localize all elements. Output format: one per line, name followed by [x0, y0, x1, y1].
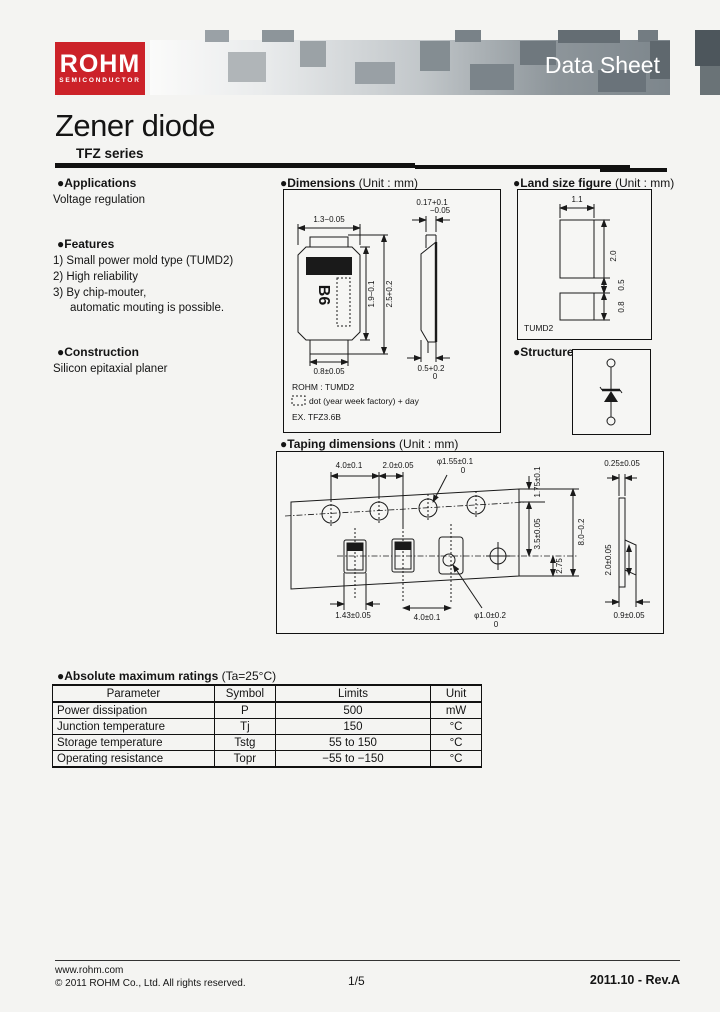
land-caption: TUMD2	[524, 323, 554, 333]
construction-body: Silicon epitaxial planer	[53, 361, 167, 377]
footer-site: www.rohm.com	[55, 964, 123, 977]
dimension-notes: ROHM : TUMD2 dot (year week factory) + d…	[292, 382, 420, 422]
cell-unit: mW	[431, 702, 482, 719]
rohm-logo: ROHM SEMICONDUCTOR	[55, 42, 145, 95]
table-row: Power dissipation P 500 mW	[53, 702, 482, 719]
dim-side-thickness-a: 0.5+0.2	[418, 364, 445, 373]
package-front-view: B6	[298, 237, 360, 354]
features-item: 3) By chip-mouter,	[53, 285, 146, 301]
datasheet-page: { "header": {"logo_brand": "ROHM", "logo…	[0, 0, 720, 1012]
structure-figure	[572, 349, 651, 435]
banner-square	[300, 41, 326, 67]
structure-drawing	[573, 350, 650, 434]
footer-page-number: 1/5	[348, 974, 365, 988]
dim-land-width: 1.1	[571, 195, 583, 204]
dim-lead-width: 0.8±0.05	[313, 367, 345, 376]
dim-pocket-hole-tol: 0	[494, 620, 499, 629]
rohm-logo-subtext: SEMICONDUCTOR	[59, 77, 140, 84]
applications-heading: ●Applications	[57, 176, 136, 190]
banner-title: Data Sheet	[545, 52, 660, 79]
cell-parameter: Junction temperature	[53, 719, 215, 735]
dim-pocket-width: 1.43±0.05	[335, 611, 371, 620]
page-title: Zener diode	[55, 108, 215, 144]
rohm-logo-text: ROHM	[60, 53, 140, 75]
cell-symbol: Tstg	[214, 735, 275, 751]
taping-heading-text: ●Taping dimensions	[280, 437, 396, 451]
dim-tape-width: 8.0−0.2	[577, 518, 586, 545]
features-item: 2) High reliability	[53, 269, 138, 285]
dimensions-figure: B6 1.3−0.05 1.9−0.1 2.5+0.2 0.8±0.05 0.1…	[283, 189, 501, 433]
land-heading-text: ●Land size figure	[513, 176, 612, 190]
taping-figure: 4.0±0.1 2.0±0.05 φ1.55±0.1 0 1.75±0.1 3.…	[276, 451, 664, 634]
cell-limits: 55 to 150	[275, 735, 430, 751]
land-drawing: 1.1 2.0 0.5 0.8 TUMD2	[518, 190, 651, 339]
construction-heading: ●Construction	[57, 345, 139, 359]
dim-tape-thickness: 0.25±0.05	[604, 459, 640, 468]
table-row: Operating resistance Topr −55 to −150 °C	[53, 751, 482, 768]
dim-front-width: 1.3−0.05	[313, 215, 345, 224]
dim-land-length: 2.0	[609, 250, 618, 262]
series-subtitle: TFZ series	[76, 146, 144, 161]
dim-total-length: 2.5+0.2	[385, 280, 394, 307]
cell-limits: −55 to −150	[275, 751, 430, 768]
ratings-table: Parameter Symbol Limits Unit Power dissi…	[52, 684, 482, 768]
table-header-row: Parameter Symbol Limits Unit	[53, 685, 482, 702]
package-side-view	[421, 235, 436, 353]
cell-limits: 500	[275, 702, 430, 719]
cell-unit: °C	[431, 735, 482, 751]
title-rule	[55, 163, 415, 168]
banner-square	[455, 30, 481, 42]
cell-symbol: P	[214, 702, 275, 719]
note-dot-legend: dot (year week factory) + day	[309, 396, 420, 406]
front-dimension-lines: 1.3−0.05 1.9−0.1 2.5+0.2 0.8±0.05	[298, 215, 394, 376]
ratings-table-wrap: Parameter Symbol Limits Unit Power dissi…	[52, 684, 482, 768]
features-item: automatic mouting is possible.	[70, 300, 224, 316]
cell-symbol: Topr	[214, 751, 275, 768]
taping-heading: ●Taping dimensions (Unit : mm)	[280, 437, 458, 451]
dimensions-unit: (Unit : mm)	[359, 176, 418, 190]
land-dimension-lines: 1.1 2.0 0.5 0.8	[560, 195, 626, 320]
banner-square	[695, 30, 720, 66]
col-unit: Unit	[431, 685, 482, 702]
dim-pocket-pitch: 4.0±0.1	[414, 613, 441, 622]
banner-square	[700, 66, 720, 95]
dim-pocket-length: 2.0±0.05	[604, 544, 613, 576]
tape-components	[344, 524, 510, 604]
features-item: 1) Small power mold type (TUMD2)	[53, 253, 233, 269]
dim-side-top-b: −0.05	[430, 206, 451, 215]
taping-drawing: 4.0±0.1 2.0±0.05 φ1.55±0.1 0 1.75±0.1 3.…	[277, 452, 663, 633]
cell-unit: °C	[431, 751, 482, 768]
dim-hole-to-pocket: 2.0±0.05	[382, 461, 414, 470]
dim-land-gap: 0.5	[617, 279, 626, 291]
dimensions-heading: ●Dimensions (Unit : mm)	[280, 176, 418, 190]
land-figure: 1.1 2.0 0.5 0.8 TUMD2	[517, 189, 652, 340]
note-package-name: ROHM : TUMD2	[292, 382, 354, 392]
ratings-condition: (Ta=25°C)	[222, 669, 277, 683]
taping-unit: (Unit : mm)	[399, 437, 458, 451]
land-heading: ●Land size figure (Unit : mm)	[513, 176, 674, 190]
banner-square	[262, 30, 294, 42]
dim-pocket-hole-dia: φ1.0±0.2	[474, 611, 506, 620]
footer-copyright: © 2011 ROHM Co., Ltd. All rights reserve…	[55, 977, 246, 990]
dimensions-drawing: B6 1.3−0.05 1.9−0.1 2.5+0.2 0.8±0.05 0.1…	[284, 190, 500, 432]
dim-bottom-margin: 2.75	[555, 558, 564, 574]
table-row: Storage temperature Tstg 55 to 150 °C	[53, 735, 482, 751]
banner-square	[355, 62, 395, 84]
cell-parameter: Power dissipation	[53, 702, 215, 719]
marking-text: B6	[315, 285, 332, 306]
dim-side-thickness-b: 0	[433, 372, 438, 381]
applications-body: Voltage regulation	[53, 192, 145, 208]
col-limits: Limits	[275, 685, 430, 702]
banner-square	[558, 30, 620, 43]
table-row: Junction temperature Tj 150 °C	[53, 719, 482, 735]
dim-hole-dia-tol: 0	[461, 466, 466, 475]
dim-hole-dia: φ1.55±0.1	[437, 457, 474, 466]
side-dimension-lines: 0.17+0.1 −0.05 0.5+0.2 0	[407, 198, 451, 381]
dimensions-heading-text: ●Dimensions	[280, 176, 355, 190]
cell-unit: °C	[431, 719, 482, 735]
banner-square	[420, 41, 450, 71]
title-rule	[600, 168, 667, 172]
dim-hole-pitch: 4.0±0.1	[336, 461, 363, 470]
features-heading: ●Features	[57, 237, 114, 251]
land-pads	[560, 220, 594, 320]
cell-limits: 150	[275, 719, 430, 735]
taping-dimension-lines: 4.0±0.1 2.0±0.05 φ1.55±0.1 0 1.75±0.1 3.…	[330, 457, 586, 629]
structure-heading: ●Structure	[513, 345, 574, 359]
col-symbol: Symbol	[214, 685, 275, 702]
col-parameter: Parameter	[53, 685, 215, 702]
dim-land-pad: 0.8	[617, 301, 626, 313]
banner-square	[470, 64, 514, 90]
ratings-heading: ●Absolute maximum ratings (Ta=25°C)	[57, 669, 276, 683]
dim-edge-to-hole: 1.75±0.1	[533, 466, 542, 498]
footer-revision: 2011.10 - Rev.A	[560, 973, 680, 987]
cell-symbol: Tj	[214, 719, 275, 735]
zener-diode-symbol	[600, 359, 622, 425]
cell-parameter: Storage temperature	[53, 735, 215, 751]
dim-pocket-depth: 0.9±0.05	[613, 611, 645, 620]
footer-rule	[55, 960, 680, 961]
note-marking-example: EX. TFZ3.6B	[292, 412, 341, 422]
dim-hole-to-center: 3.5±0.05	[533, 518, 542, 550]
land-unit: (Unit : mm)	[615, 176, 674, 190]
dim-body-length: 1.9−0.1	[367, 280, 376, 307]
ratings-heading-text: ●Absolute maximum ratings	[57, 669, 218, 683]
tape-side-view: 0.25±0.05 2.0±0.05 0.9±0.05	[604, 459, 650, 620]
banner-square	[228, 52, 266, 82]
cell-parameter: Operating resistance	[53, 751, 215, 768]
title-rule	[415, 165, 630, 169]
banner-square	[205, 30, 229, 42]
